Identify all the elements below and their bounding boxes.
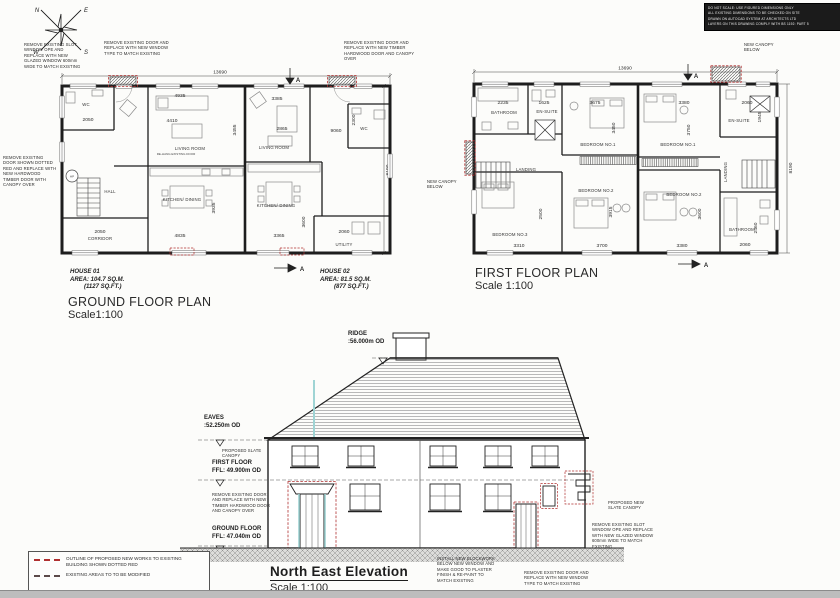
ff-room-bathroom-l: BATHROOM [491, 110, 517, 115]
gf-room-kitchen2: KITCHEN/ DINING [257, 203, 296, 208]
gf-room-living2: LIVING ROOM [259, 145, 290, 150]
legend-swatch-dashed-dark [34, 575, 60, 577]
ff-dim-bed2-r-h: 3600 [697, 208, 703, 219]
ff-dim-bed2-c-w: 3700 [597, 243, 608, 249]
gf-stairs [77, 178, 100, 216]
ff-dim-ensuite-l: 1625 [539, 100, 550, 106]
gf-note-rehang: RE-HANG EXISTING DOOR [157, 152, 196, 156]
ff-dim-overall: 13690 [618, 66, 632, 72]
gf-room-wc1: WC [82, 102, 89, 107]
elevation-title: North East Elevation [270, 564, 408, 581]
annotation-new-canopy-below-right: NEW CANOPY BELOW [744, 42, 782, 53]
elevation-ridge-label: RIDGE:56.000m OD [348, 331, 384, 346]
annotation-elev-remove-door-right: REMOVE EXISTING DOOR AND REPLACE WITH NE… [524, 570, 594, 586]
gf-section-label-top: A [296, 78, 301, 84]
elevation-roof [268, 358, 585, 440]
gf-dim-kitchen1-h: 3935 [211, 202, 217, 213]
elevation-eaves-label: EAVES:52.250m OD [204, 415, 240, 430]
elevation-ground-floor-label: GROUND FLOORFFL: 47.040m OD [212, 526, 261, 541]
gf-plan-title: GROUND FLOOR PLAN [68, 295, 211, 309]
gf-dim-overall: 13690 [213, 70, 227, 76]
ff-dim-bed1-r-h: 3750 [686, 124, 692, 135]
gf-dim-utility-w: 2060 [339, 229, 350, 235]
elevation-ground-hatch [180, 548, 624, 562]
ff-wardrobe-right [642, 159, 698, 167]
ff-room-bed2-c: BEDROOM NO.2 [578, 188, 614, 193]
annotation-elev-remove-slot-window: REMOVE EXISTING SLOT WINDOW OPE AND REPL… [592, 522, 654, 549]
ff-dim-bed3-h: 2500 [538, 208, 544, 219]
gf-entrance-canopies [109, 76, 357, 256]
ff-room-bathroom-r: BATHROOM [729, 227, 755, 232]
note-line: LAYERS ON THIS DRAWING COMPLY WITH BS 11… [708, 22, 840, 27]
ff-room-landing-l: LANDING [516, 167, 537, 172]
gf-dim-living2-w: 3385 [272, 96, 283, 102]
gf-dim-kitchen2-h: 3600 [301, 216, 307, 227]
gf-walls [62, 86, 390, 253]
ff-section-label-top: A [694, 74, 699, 80]
ff-dim-bath-r-w: 2060 [740, 242, 751, 248]
ff-dim-bed1-r-w: 3380 [679, 100, 690, 106]
gf-dim-hall2: 9060 [331, 128, 342, 134]
ff-section-label-bottom: A [704, 263, 709, 269]
ff-room-landing-r: LANDING [723, 161, 728, 182]
gf-room-living1: LIVING ROOM [175, 146, 206, 151]
legend-item-proposed: OUTLINE OF PROPOSED NEW WORKS TO EXISTIN… [34, 556, 204, 568]
ff-dim-bed2-c-h: 3915 [608, 206, 614, 217]
ff-dim-bath-l: 2235 [498, 100, 509, 106]
elevation-first-floor-label: FIRST FLOORFFL: 49.900m OD [212, 460, 261, 475]
ff-dim-height: 8190 [788, 162, 794, 173]
gf-room-kitchen1: KITCHEN/ DINING [163, 197, 202, 202]
ff-dim-bed1-l-w: 3675 [590, 100, 601, 106]
elevation-chimney [393, 333, 429, 360]
gf-dim-living1-w: 4935 [175, 93, 186, 99]
compass-e: E [84, 8, 89, 14]
ff-dim-ensuite-r-h: 1945 [757, 111, 763, 122]
annotation-proposed-new-slate-canopy: PROPOSED NEW SLATE CANOPY [608, 500, 650, 511]
compass-s: S [84, 50, 88, 56]
annotation-proposed-slate-canopy: PROPOSED SLATE CANOPY [222, 448, 268, 459]
gf-dim-corridor: 2050 [95, 229, 106, 235]
ff-plan-scale: Scale 1:100 [475, 280, 533, 292]
gf-room-utility: UTILITY [335, 242, 352, 247]
ff-dim-bath-r-h: 2460 [753, 222, 759, 233]
gf-dim-wc1: 2050 [83, 117, 94, 123]
ff-room-bed1-l: BEDROOM NO.1 [580, 142, 616, 147]
gf-room-corridor: CORRIDOR [88, 236, 113, 241]
annotation-elev-remove-door-left: REMOVE EXISTING DOOR AND REPLACE WITH NE… [212, 492, 274, 514]
gf-dim-kitchen1-w: 4835 [175, 233, 186, 239]
gf-plan-scale: Scale1:100 [68, 309, 123, 321]
annotation-remove-door-window: REMOVE EXISTING DOOR AND REPLACE WITH NE… [104, 40, 170, 56]
annotation-new-canopy-below-left: NEW CANOPY BELOW [427, 179, 465, 190]
ff-room-ensuite-r: EN-SUITE [728, 118, 749, 123]
gf-dim-kitchen2-w: 3365 [274, 233, 285, 239]
ff-dim-bed2-r-w: 3380 [677, 243, 688, 249]
gf-dim-wc2-h: 2300 [351, 114, 357, 125]
legend-item-existing: EXISTING AREAS TO TO BE MODIFIED [34, 572, 204, 578]
ff-dim-bed3-w: 3310 [514, 243, 525, 249]
annotation-remove-door-timber: REMOVE EXISTING DOOR AND REPLACE WITH NE… [344, 40, 416, 62]
ff-room-bed2-r: BEDROOM NO.2 [666, 192, 702, 197]
gf-house01-label: HOUSE 01 AREA: 104.7 SQ.M. (1127 SQ.FT.) [70, 269, 124, 292]
gf-section-label-bottom: A [300, 267, 305, 273]
scan-edge-strip [0, 590, 840, 598]
ff-wardrobe-left [580, 157, 636, 165]
ground-floor-plan: 13690 8190 [52, 66, 404, 284]
gf-room-hall: HALL [104, 189, 116, 194]
first-floor-plan: 13690 8190 [462, 62, 814, 276]
compass-n: N [35, 8, 40, 14]
gf-dim-living1-h: 3455 [232, 124, 238, 135]
ff-dim-bed1-l-h: 3450 [611, 122, 617, 133]
gf-dim-living1-w2: 4410 [167, 118, 178, 124]
gf-hp-label: HP [70, 175, 74, 179]
drawing-sheet: N E W S DO NOT SCALE: USE FIGURED DIMENS… [0, 0, 840, 598]
ff-room-bed1-r: BEDROOM NO.1 [660, 142, 696, 147]
ff-room-bed3: BEDROOM NO.3 [492, 232, 528, 237]
annotation-install-blockwork: INSTALL NEW BLOCKWORK BELOW NEW WINDOW A… [437, 556, 499, 583]
legend-swatch-dotted-red [34, 559, 60, 561]
gf-section-marker-bottom [274, 264, 296, 272]
gf-room-wc2: WC [360, 126, 367, 131]
ff-plan-title: FIRST FLOOR PLAN [475, 266, 598, 280]
ff-dim-ensuite-r-w: 2060 [742, 100, 753, 106]
drawing-notes-block: DO NOT SCALE: USE FIGURED DIMENSIONS ONL… [704, 3, 840, 31]
gf-house02-label: HOUSE 02 AREA: 81.5 SQ.M. (877 SQ.FT.) [320, 269, 371, 292]
gf-dim-living2-w2: 2865 [277, 126, 288, 132]
ff-section-marker-bottom [678, 260, 700, 268]
annotation-door-dotted-red: REMOVE EXISTING DOOR SHOWN DOTTED RED AN… [3, 155, 57, 188]
ff-room-ensuite-l: EN-SUITE [536, 109, 557, 114]
